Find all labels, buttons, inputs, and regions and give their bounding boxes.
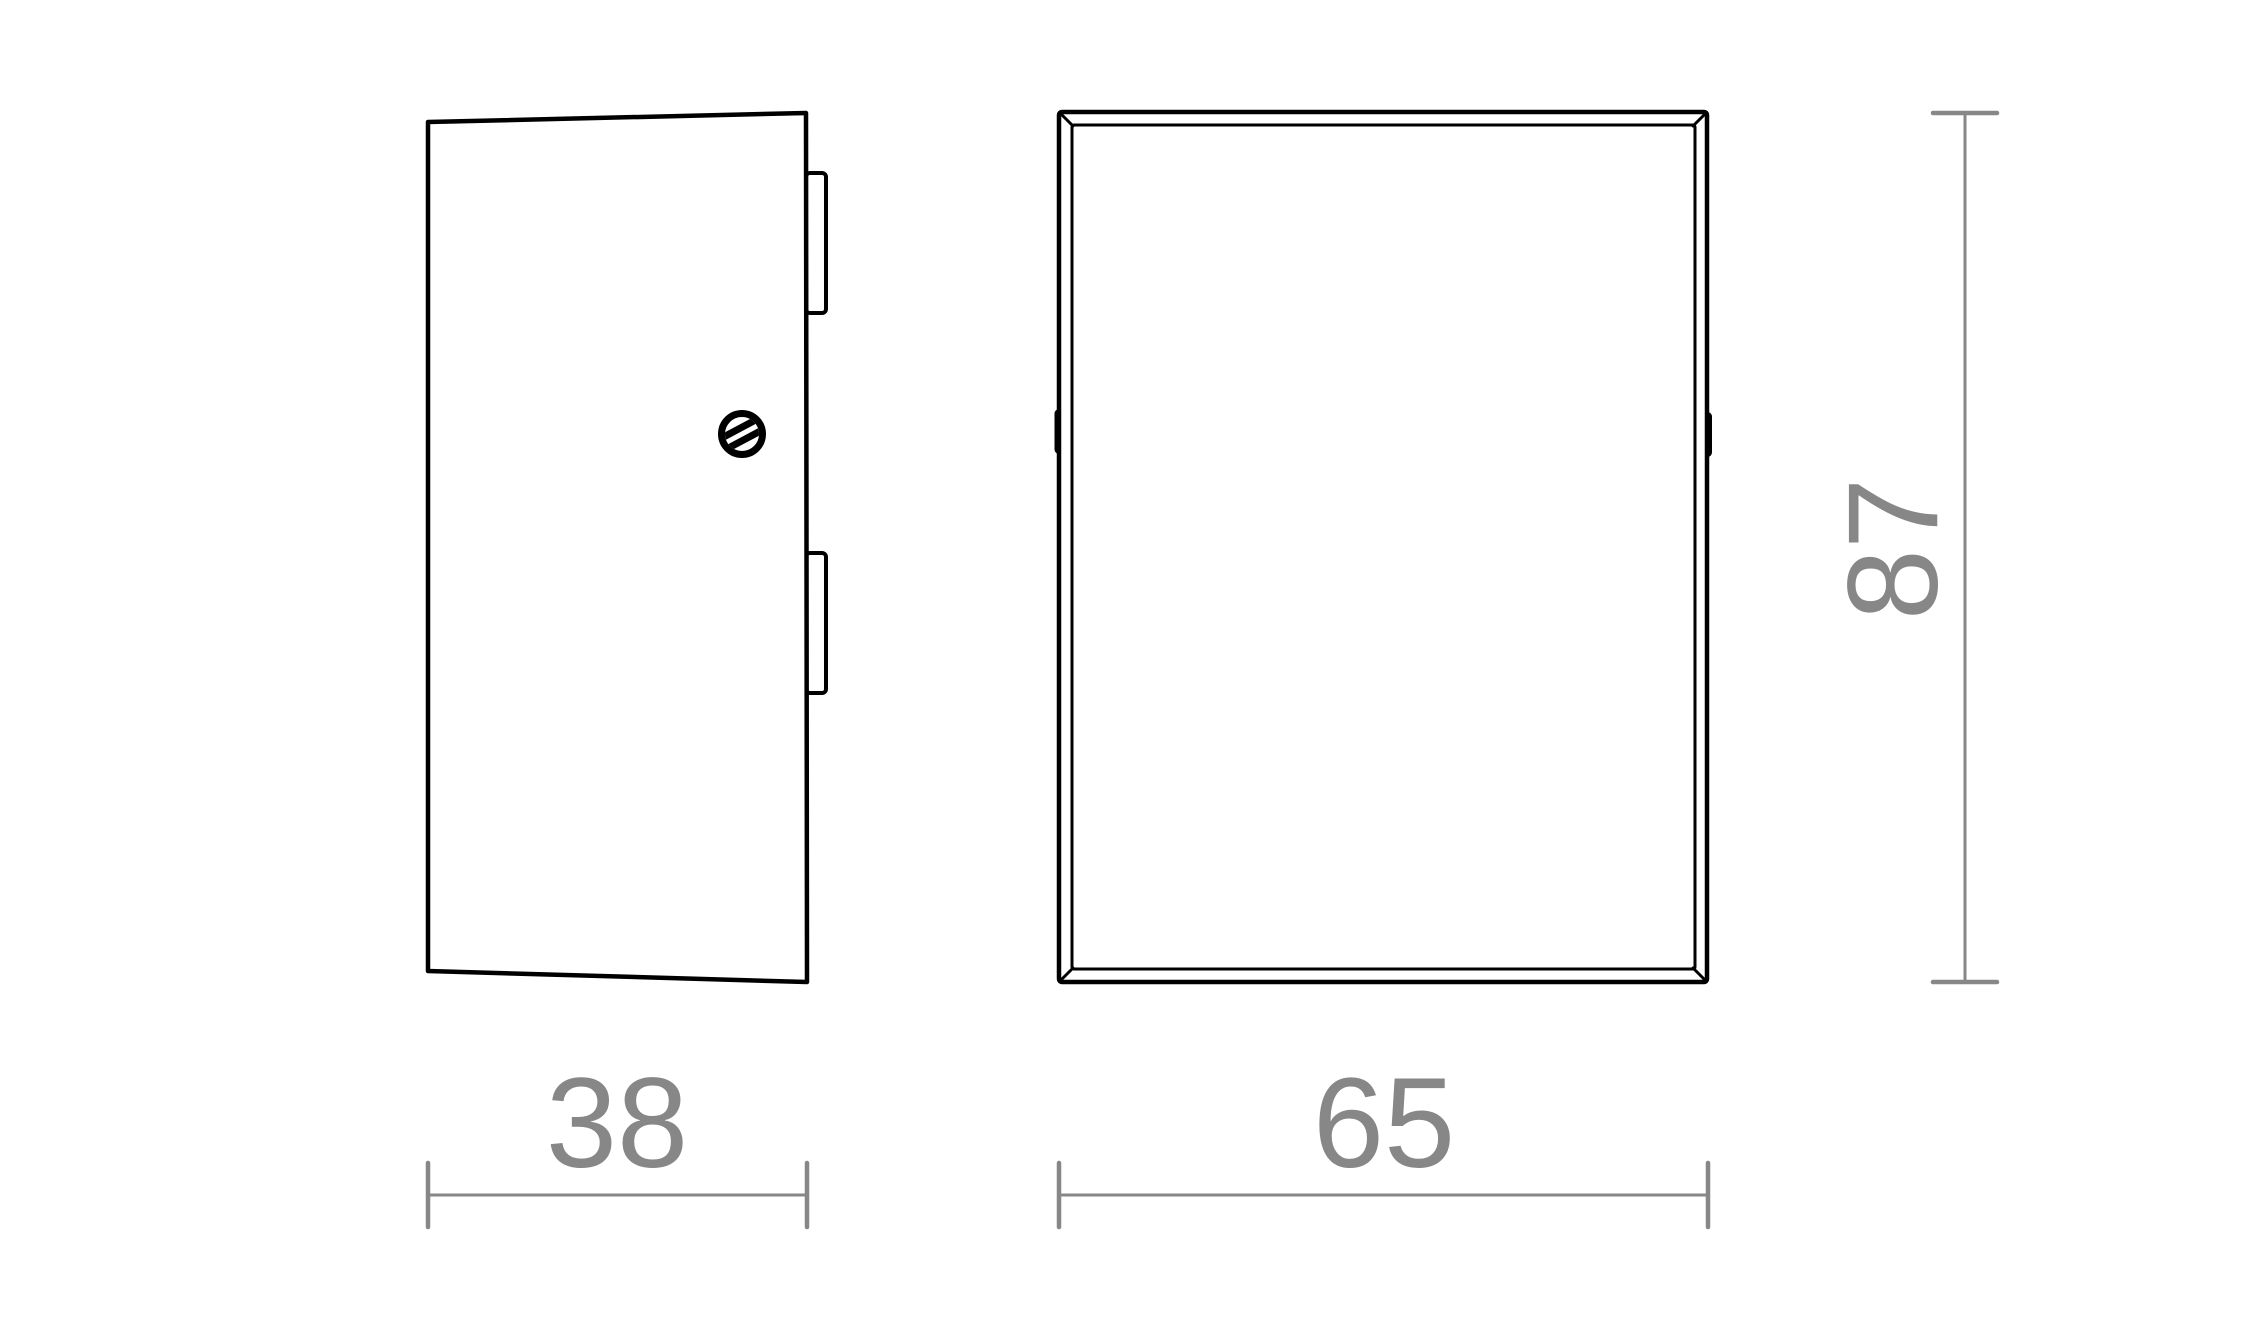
dimension-width: 65 [1059, 1052, 1708, 1227]
dimension-height-label: 87 [1822, 478, 1965, 620]
side-view [428, 113, 826, 982]
dimension-height: 87 [1822, 113, 1997, 982]
dimension-depth: 38 [428, 1052, 807, 1227]
technical-drawing-page: 38 65 87 [0, 0, 2268, 1323]
mounting-tab-top [806, 173, 826, 313]
front-view [1055, 112, 1713, 982]
dimension-drawing-canvas: 38 65 87 [0, 0, 2268, 1323]
mounting-tab-bottom [806, 553, 826, 693]
front-view-outer-frame [1059, 112, 1707, 982]
dimension-width-label: 65 [1313, 1052, 1455, 1195]
dimension-depth-label: 38 [546, 1052, 688, 1195]
side-view-body [428, 113, 807, 982]
